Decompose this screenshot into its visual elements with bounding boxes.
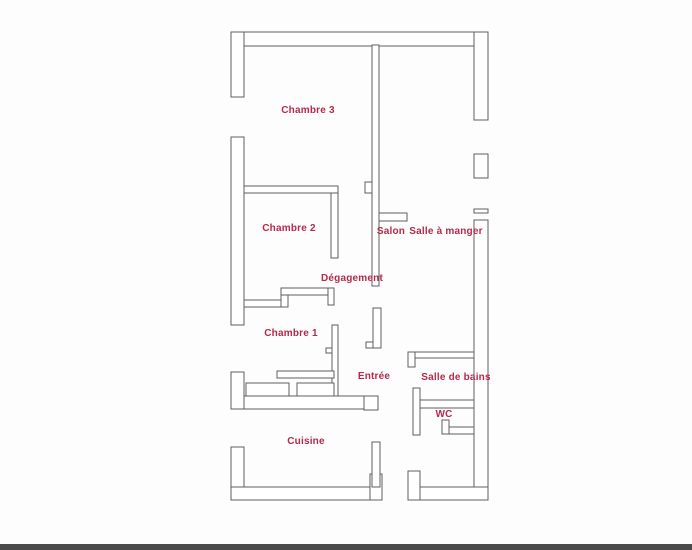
room-label-salle-de-bains: Salle de bains — [421, 372, 491, 383]
chambre1-door-tab — [326, 348, 332, 353]
room-label-degagement: Dégagement — [321, 273, 383, 284]
left-wall-3 — [231, 372, 244, 409]
entree-left-wall — [373, 308, 381, 348]
room-label-chambre-3: Chambre 3 — [281, 105, 335, 116]
chambre1-bottom-jamb — [364, 396, 378, 410]
left-wall-1 — [231, 32, 244, 97]
right-wall-lower — [474, 220, 488, 500]
closet-box-1 — [246, 383, 289, 397]
bath-top-hook — [408, 352, 415, 367]
floor-plan: Chambre 3Chambre 2SalonSalle à mangerDég… — [0, 0, 692, 550]
chambre2-right-wall — [331, 193, 338, 258]
room-label-salon: Salon — [377, 226, 405, 237]
bottom-wall-left — [231, 487, 382, 500]
salon-stub-wall — [379, 213, 407, 221]
corridor-endcap — [328, 288, 334, 305]
closet-box-2 — [297, 383, 334, 397]
bath-top-wall — [408, 352, 474, 358]
floor-plan-page: Chambre 3Chambre 2SalonSalle à mangerDég… — [0, 0, 692, 550]
room-label-entree: Entrée — [358, 371, 391, 382]
entree-left-hook — [366, 342, 373, 348]
wc-bottom-hook — [442, 420, 449, 434]
bottom-wall-right-jamb — [408, 471, 420, 500]
corridor-wall-high — [281, 288, 333, 295]
room-label-chambre-2: Chambre 2 — [262, 223, 316, 234]
left-wall-2 — [231, 137, 244, 325]
wc-top-wall — [420, 400, 474, 408]
room-label-salle-a-manger: Salle à manger — [409, 226, 482, 237]
right-wall-upper — [474, 32, 488, 120]
wc-left-wall — [413, 388, 420, 435]
right-window — [474, 154, 488, 178]
chambre1-bottom-wall — [244, 396, 372, 409]
right-sill — [474, 209, 488, 213]
room-label-wc: WC — [435, 409, 452, 420]
scan-edge-strip — [0, 544, 692, 550]
room-label-cuisine: Cuisine — [287, 436, 325, 447]
top-wall — [231, 32, 488, 46]
cuisine-right-wall — [372, 442, 380, 487]
room-label-chambre-1: Chambre 1 — [264, 328, 318, 339]
chambre2-top-wall — [244, 186, 338, 193]
closet-top-wall — [277, 371, 334, 378]
salon-wall — [372, 45, 379, 286]
salon-door-tab — [365, 182, 372, 193]
